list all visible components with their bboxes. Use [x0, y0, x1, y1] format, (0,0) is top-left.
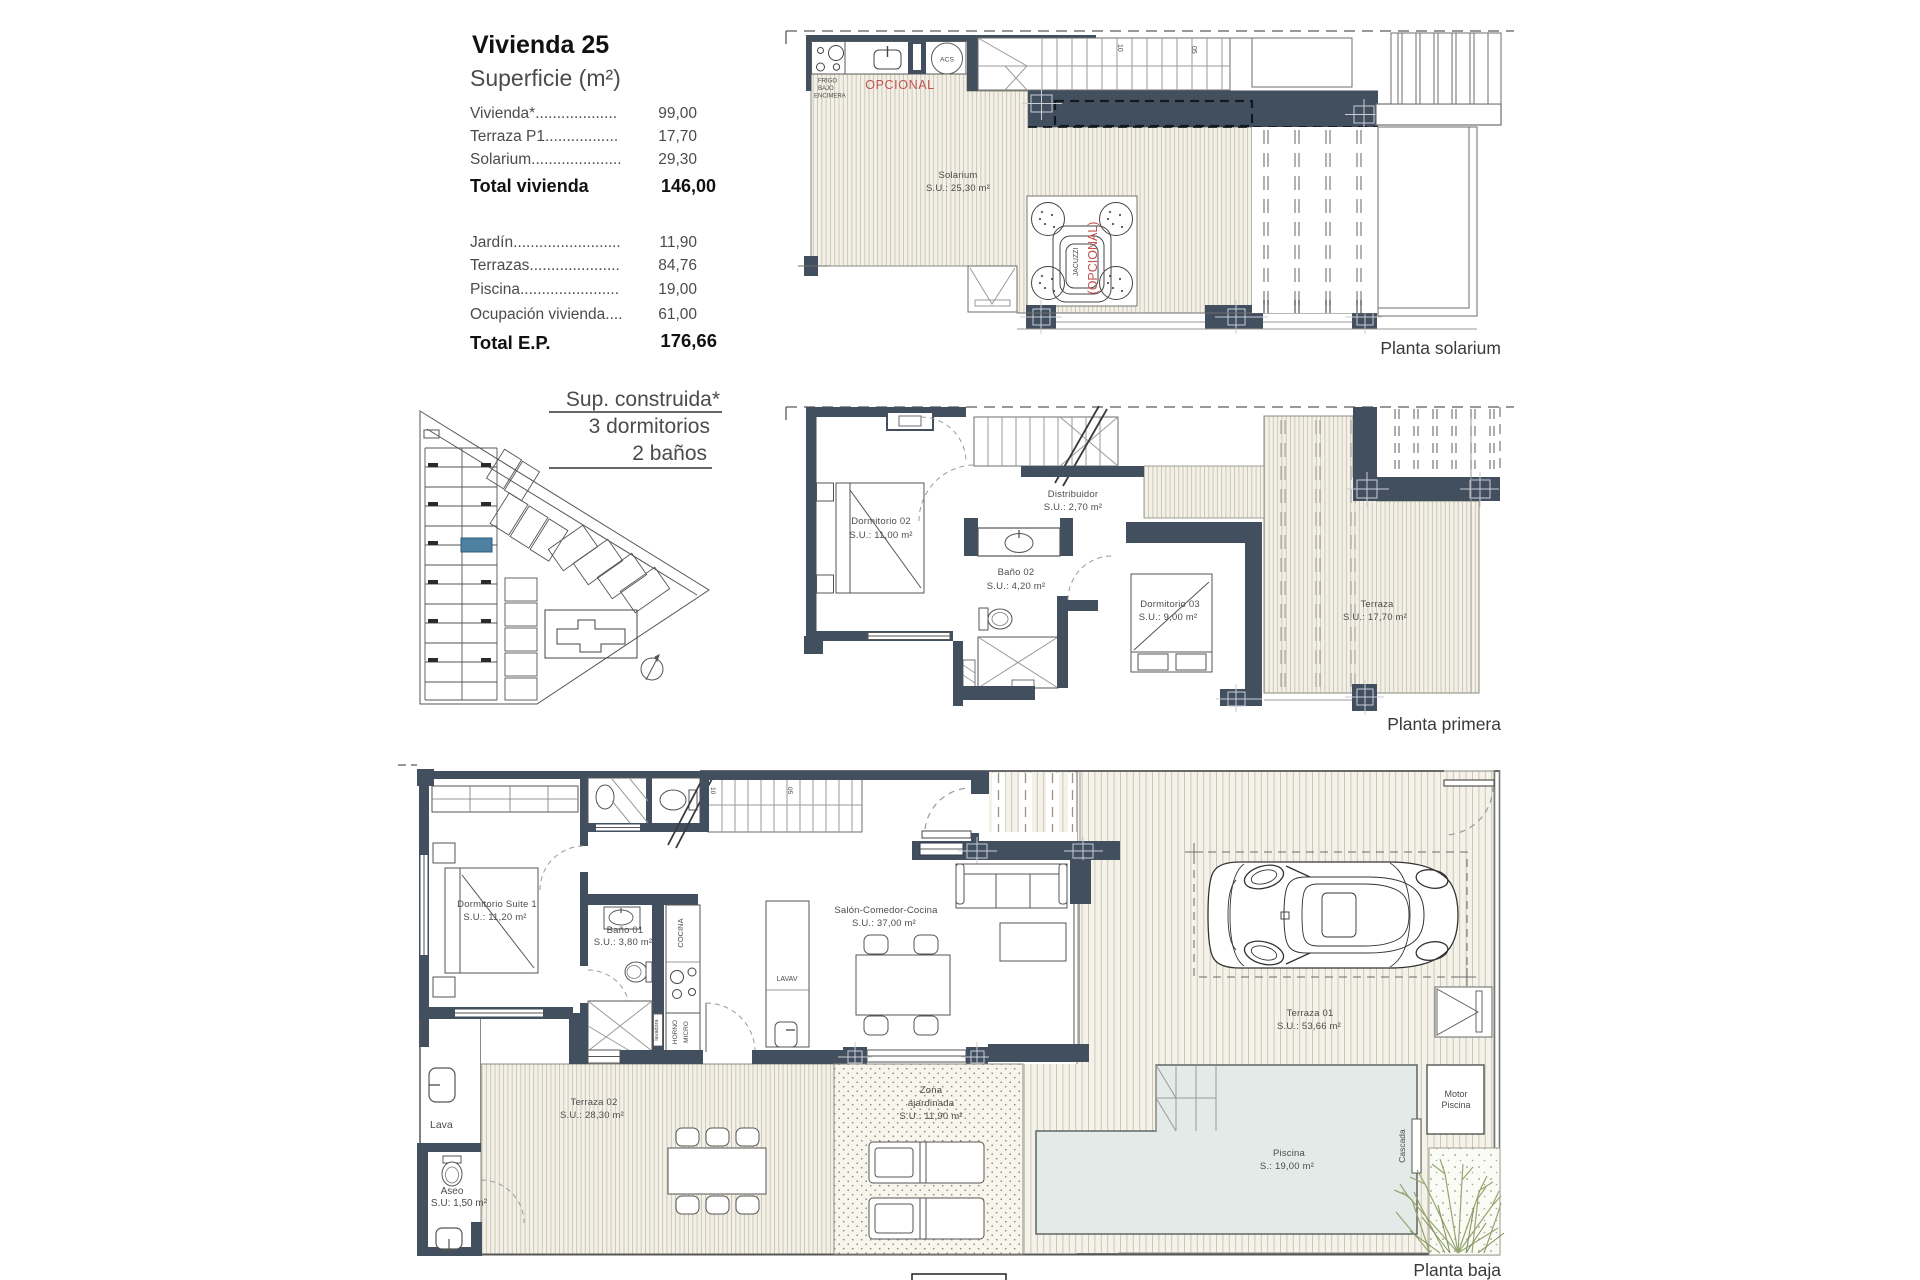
svg-text:Vivienda*...................: Vivienda*...................	[470, 105, 617, 122]
svg-text:S.U.: 11,90 m²: S.U.: 11,90 m²	[899, 1111, 962, 1122]
svg-text:11,90: 11,90	[659, 234, 697, 251]
svg-text:146,00: 146,00	[661, 176, 716, 196]
svg-text:S.: 19,00 m²: S.: 19,00 m²	[1260, 1161, 1314, 1172]
svg-text:S.U.: 4,20 m²: S.U.: 4,20 m²	[987, 581, 1046, 592]
svg-text:Jardín........................: Jardín.........................	[470, 234, 621, 251]
svg-text:Vivienda 25: Vivienda 25	[472, 31, 609, 59]
svg-text:3 dormitorios: 3 dormitorios	[589, 415, 710, 438]
svg-text:99,00: 99,00	[658, 105, 697, 122]
svg-text:Dormitorio Suite 1: Dormitorio Suite 1	[457, 899, 537, 910]
svg-text:10: 10	[1116, 44, 1123, 52]
svg-text:Salón-Comedor-Cocina: Salón-Comedor-Cocina	[834, 905, 938, 916]
svg-text:84,76: 84,76	[658, 257, 697, 274]
svg-text:176,66: 176,66	[660, 330, 717, 351]
svg-text:Planta primera: Planta primera	[1387, 714, 1501, 734]
svg-text:ajardinada: ajardinada	[908, 1098, 955, 1109]
svg-text:S.U.: 2,70 m²: S.U.: 2,70 m²	[1044, 502, 1103, 513]
svg-text:ACS: ACS	[940, 57, 954, 64]
svg-text:2 baños: 2 baños	[632, 442, 707, 465]
svg-text:19,00: 19,00	[658, 281, 697, 298]
svg-text:Baño 01: Baño 01	[607, 925, 644, 936]
svg-text:Solarium: Solarium	[938, 170, 977, 181]
svg-text:05: 05	[1190, 46, 1197, 54]
svg-text:Total vivienda: Total vivienda	[470, 176, 590, 196]
svg-text:S.U.: 11,00 m²: S.U.: 11,00 m²	[849, 530, 912, 541]
svg-text:S.U.: 25,30 m²: S.U.: 25,30 m²	[926, 183, 990, 194]
svg-text:MICRO: MICRO	[683, 1021, 690, 1043]
svg-text:HORNO: HORNO	[672, 1020, 679, 1044]
svg-text:Sup. construida*: Sup. construida*	[566, 388, 720, 411]
svg-text:S.U.: 9,00 m²: S.U.: 9,00 m²	[1139, 612, 1198, 623]
svg-text:BAJO: BAJO	[818, 86, 834, 92]
svg-text:JACUZZI: JACUZZI	[1073, 248, 1080, 277]
svg-text:COCINA: COCINA	[676, 918, 685, 947]
svg-text:Aseo: Aseo	[441, 1186, 464, 1197]
svg-text:Ocupación vivienda....: Ocupación vivienda....	[470, 306, 623, 323]
svg-text:S.U.: 11,20 m²: S.U.: 11,20 m²	[463, 912, 526, 923]
svg-text:Terraza 02: Terraza 02	[571, 1097, 618, 1108]
svg-text:Total E.P.: Total E.P.	[470, 332, 551, 353]
svg-text:Dormitorio 03: Dormitorio 03	[1140, 599, 1200, 610]
svg-text:Terraza: Terraza	[1360, 599, 1394, 610]
svg-text:Terraza 01: Terraza 01	[1287, 1008, 1334, 1019]
svg-text:Lava: Lava	[430, 1119, 453, 1131]
svg-text:Baño 02: Baño 02	[998, 567, 1035, 578]
svg-text:Motor: Motor	[1444, 1089, 1467, 1099]
svg-text:Piscina.......................: Piscina.......................	[470, 281, 619, 298]
svg-text:ENCIMERA: ENCIMERA	[814, 94, 846, 100]
svg-text:S.U.: 37,00 m²: S.U.: 37,00 m²	[852, 918, 916, 929]
svg-text:S.U.: 17,70 m²: S.U.: 17,70 m²	[1343, 612, 1407, 623]
svg-text:Planta solarium: Planta solarium	[1380, 338, 1501, 358]
svg-text:10: 10	[709, 787, 716, 795]
svg-text:Dormitorio 02: Dormitorio 02	[851, 516, 911, 527]
svg-text:S.U.: 53,66 m²: S.U.: 53,66 m²	[1277, 1021, 1341, 1032]
svg-text:Zona: Zona	[920, 1085, 943, 1096]
svg-text:61,00: 61,00	[658, 306, 697, 323]
svg-text:Terrazas.....................: Terrazas.....................	[470, 257, 620, 274]
svg-text:Solarium.....................: Solarium.....................	[470, 151, 622, 168]
svg-text:Superficie (m²): Superficie (m²)	[470, 65, 621, 91]
svg-text:lavadora: lavadora	[654, 1019, 660, 1041]
svg-text:S.U: 1,50 m²: S.U: 1,50 m²	[431, 1198, 488, 1209]
svg-text:FRIGO: FRIGO	[818, 79, 837, 85]
svg-text:S.U.: 28,30 m²: S.U.: 28,30 m²	[560, 1110, 624, 1121]
svg-text:(OPCIONAL): (OPCIONAL)	[1086, 222, 1100, 295]
svg-text:OPCIONAL: OPCIONAL	[865, 78, 934, 92]
svg-text:Planta baja: Planta baja	[1413, 1260, 1501, 1280]
svg-text:Piscina: Piscina	[1273, 1148, 1306, 1159]
svg-text:Piscina: Piscina	[1441, 1100, 1470, 1110]
svg-text:S.U.: 3,80 m²: S.U.: 3,80 m²	[594, 937, 653, 948]
svg-text:29,30: 29,30	[658, 151, 697, 168]
svg-text:Cascada: Cascada	[1397, 1129, 1407, 1163]
svg-text:Distribuidor: Distribuidor	[1048, 489, 1098, 500]
svg-text:17,70: 17,70	[658, 128, 697, 145]
svg-text:05: 05	[786, 787, 793, 795]
svg-text:LAVAV: LAVAV	[776, 976, 797, 983]
svg-text:Terraza P1.................: Terraza P1.................	[470, 128, 618, 145]
